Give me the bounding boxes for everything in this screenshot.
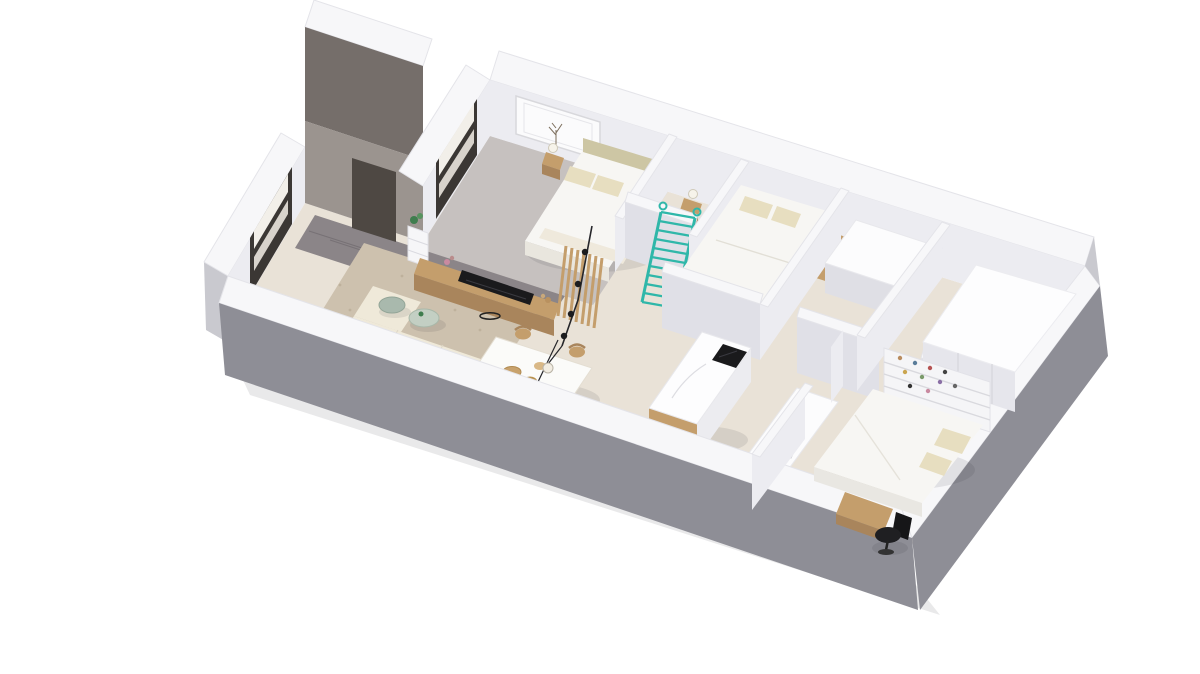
plant-icon <box>410 216 418 224</box>
tall-entry-wall <box>305 0 432 242</box>
chair-base <box>878 549 894 555</box>
coffee-table-1 <box>379 297 405 313</box>
dried-plant-icon <box>541 294 545 298</box>
flowers-icon <box>450 256 454 260</box>
lamp <box>549 144 558 153</box>
table-plant-icon <box>419 312 424 317</box>
coffee-table-2 <box>409 309 439 327</box>
dried-plant-icon <box>545 297 551 303</box>
entry-doorway <box>352 158 396 242</box>
lamp <box>689 190 698 199</box>
flowers-icon <box>444 259 450 265</box>
floor-plan-render <box>0 0 1200 674</box>
floor-plan-page <box>0 0 1200 674</box>
pendant-bulb <box>543 363 553 373</box>
plant-icon <box>417 213 423 219</box>
